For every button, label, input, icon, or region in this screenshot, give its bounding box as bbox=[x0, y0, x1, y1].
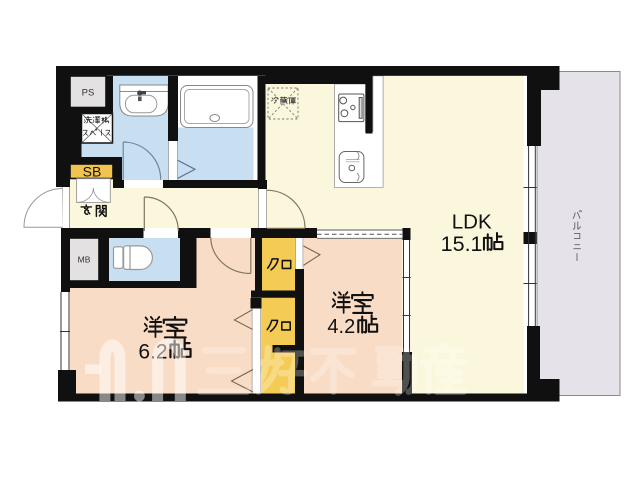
svg-text:MB: MB bbox=[78, 255, 91, 265]
svg-text:SB: SB bbox=[83, 164, 102, 180]
svg-text:LDK: LDK bbox=[452, 211, 492, 234]
svg-text:PS: PS bbox=[82, 88, 95, 99]
svg-text:15.1: 15.1 bbox=[441, 232, 483, 256]
svg-text:4.2: 4.2 bbox=[327, 316, 355, 338]
